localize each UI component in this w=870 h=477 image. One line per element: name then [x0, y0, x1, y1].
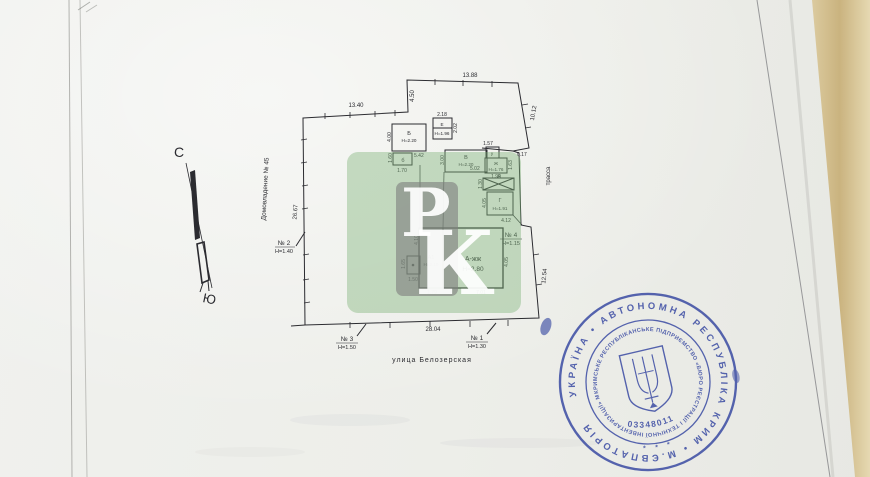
gate1-height: Н=1.30	[468, 344, 486, 350]
compass-needle-south	[197, 242, 209, 283]
building-E-label: Е	[440, 122, 443, 127]
photo-watermark: Р К	[347, 152, 521, 315]
dim-top-left: 13.40	[348, 103, 364, 109]
building-E-dim-right: 2.02	[453, 123, 459, 133]
gate3-height: Н=1.50	[338, 345, 356, 351]
neighbor-parcel-label: Домовладение № 45	[260, 157, 270, 221]
street-label: улица Белозерская	[392, 357, 472, 364]
compass-needle-north	[190, 170, 200, 240]
dim-step: 4.50	[410, 90, 416, 102]
gate2-name: № 2	[278, 240, 291, 247]
dim-seg-u: 1.57	[483, 141, 493, 147]
building-E-dim-top: 2.18	[437, 112, 447, 118]
compass-north-label: С	[174, 144, 184, 160]
dim-right-upper: 10.12	[530, 105, 539, 121]
building-B-dim-left: 4.00	[387, 132, 393, 142]
dim-top: 13.88	[462, 73, 478, 79]
compass: С Ю	[174, 144, 217, 308]
stamp-ink-blot	[538, 316, 553, 336]
watermark-letter-K: К	[415, 211, 495, 315]
dim-right-lower: 12.54	[541, 268, 549, 284]
trassa-label: трасса	[546, 166, 552, 185]
building-B-label: Б	[407, 131, 411, 137]
building-B-height: Н=2.20	[402, 138, 417, 143]
dim-bottom: 28.04	[425, 327, 441, 333]
trident-emblem-icon	[619, 346, 676, 416]
stamp-ink-blot-2	[731, 368, 741, 383]
gate2-height: Н=1.40	[275, 249, 293, 255]
site-plan-drawing: С Ю 13.40 4.50 13.88 10.1	[0, 0, 870, 477]
gate1-name: № 1	[471, 335, 484, 342]
building-E-height: Н=1.96	[435, 131, 450, 136]
scanned-document: { "colors":{ "paper":"#edeee9", "backdro…	[0, 0, 870, 477]
gate3-name: № 3	[341, 336, 354, 343]
dim-left: 26.67	[293, 204, 300, 220]
compass-south-label: Ю	[201, 290, 217, 307]
